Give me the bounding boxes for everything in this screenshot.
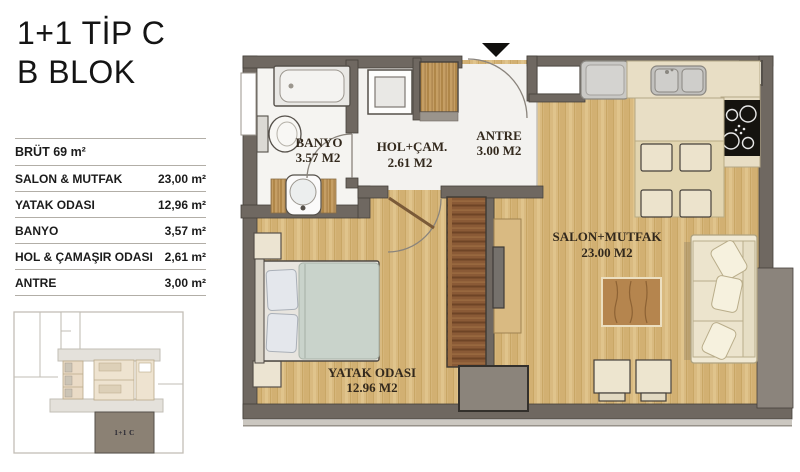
column-block [459, 366, 528, 411]
counter-peninsula [635, 98, 724, 143]
toilet-icon [257, 116, 301, 152]
coffee-table-icon [602, 278, 661, 326]
nightstand-icon [253, 361, 281, 387]
wall-antre-bottom [441, 186, 543, 198]
apartment-floor-plan: BANYO 3.57 M2 HOL+ÇAM. 2.61 M2 ANTRE 3.0… [0, 0, 800, 472]
balcony-line [243, 420, 792, 425]
label-salon: SALON+MUTFAK [552, 229, 662, 244]
wall-bath-right-lower [346, 178, 358, 188]
label-salon-area: 23.00 M2 [581, 245, 632, 260]
coat-closet-icon [420, 62, 458, 121]
keyplan-unit-label: 1+1 C [114, 429, 134, 437]
chair-icon [641, 144, 672, 171]
nightstand-icon [254, 233, 281, 259]
entrance-arrow-icon [482, 43, 510, 57]
tv-unit-icon [493, 219, 521, 333]
tv-icon [493, 247, 504, 308]
shaft-niche [537, 66, 580, 94]
label-hol-area: 2.61 M2 [388, 155, 433, 170]
label-yatak-area: 12.96 M2 [346, 380, 397, 395]
wall-niche [529, 94, 585, 102]
label-yatak: YATAK ODASI [328, 365, 416, 380]
chair-icon [680, 190, 711, 217]
armchair-icon [636, 360, 671, 393]
label-antre: ANTRE [476, 128, 522, 143]
wall-right-block [757, 268, 793, 408]
label-hol: HOL+ÇAM. [377, 139, 448, 154]
keyplan-corridor [58, 349, 160, 361]
bathroom-window [241, 73, 256, 135]
floor-plan-sheet: 1+1 TİP C B BLOK BRÜT 69 m² SALON & MUTF… [0, 0, 800, 472]
cooktop-icon [720, 100, 760, 156]
wall-right [759, 56, 773, 270]
keyplan-units [63, 360, 154, 400]
label-banyo-area: 3.57 M2 [296, 150, 341, 165]
sink-vanity-icon [271, 175, 336, 215]
chair-icon [641, 190, 672, 217]
bathtub-icon [274, 66, 350, 106]
wall-hall-bottom [358, 186, 388, 198]
wardrobe-icon [447, 197, 486, 367]
label-banyo: BANYO [296, 135, 343, 150]
balcony-line-edge [243, 425, 792, 427]
keyplan-corridor [50, 399, 163, 412]
label-antre-area: 3.00 M2 [477, 143, 522, 158]
washing-machine-icon [368, 70, 412, 114]
bed-icon [255, 259, 379, 363]
kitchen-sink-icon [651, 66, 706, 95]
chair-icon [680, 144, 711, 171]
sofa-icon [684, 235, 757, 363]
armchair-icon [594, 360, 630, 393]
key-plan: 1+1 C [14, 312, 183, 453]
